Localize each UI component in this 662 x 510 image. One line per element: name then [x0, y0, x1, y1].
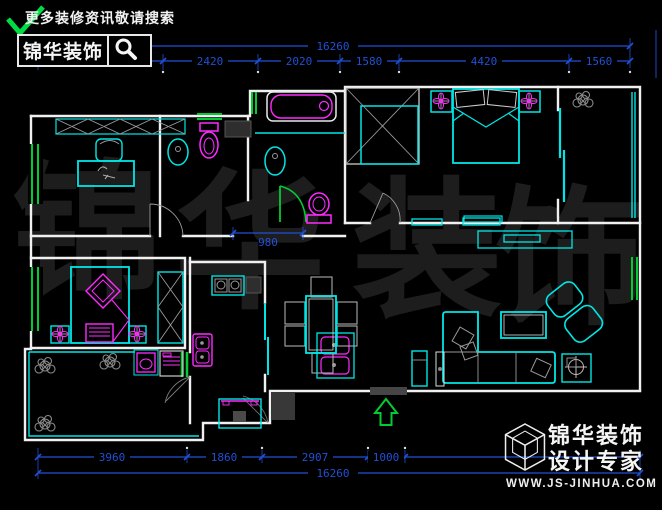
dim-top-seg-2: 2020 — [286, 55, 313, 68]
chair — [312, 353, 333, 373]
tv — [464, 216, 502, 222]
double-bed — [453, 89, 519, 163]
plant — [35, 358, 55, 374]
armchair — [543, 279, 606, 346]
balcony-window — [632, 92, 635, 218]
pillow — [487, 90, 516, 108]
dim-top-total: 16260 — [316, 40, 349, 53]
chair — [311, 277, 332, 297]
chair — [285, 302, 305, 324]
chair — [96, 139, 122, 161]
toilet-bowl — [309, 193, 329, 215]
coffee-table — [501, 312, 546, 338]
living-room-furniture — [412, 279, 606, 386]
footer-url: WWW.JS-JINHUA.COM — [506, 478, 657, 490]
master-bedroom-furniture — [346, 88, 635, 222]
cushion — [460, 342, 478, 360]
plant — [100, 354, 120, 370]
dim-bottom-total: 16260 — [316, 467, 349, 480]
pillow — [455, 90, 484, 108]
sliding-door — [560, 108, 564, 202]
dining-set — [285, 277, 357, 373]
blanket — [86, 324, 113, 342]
footer-logo: 锦华装饰 设计专家 WWW.JS-JINHUA.COM — [488, 404, 662, 508]
entry-arrow-icon — [375, 399, 397, 425]
telephone-icon — [98, 167, 115, 179]
dim-top-seg-5: 1560 — [586, 55, 613, 68]
floor-plan-canvas: 锦 华 装 饰 — [0, 0, 662, 510]
dim-bottom-seg-2: 2907 — [302, 451, 329, 464]
cushion — [531, 358, 551, 377]
walls — [25, 87, 640, 440]
kitchen-door — [265, 303, 268, 375]
logo-brand-text: 锦华装饰 — [19, 37, 103, 64]
plant — [573, 92, 593, 108]
washbasin — [265, 147, 285, 175]
toilet-tank — [200, 123, 218, 131]
dim-bottom-seg-1: 1860 — [211, 451, 238, 464]
dim-interior-980: 980 — [258, 236, 278, 249]
search-icon — [109, 35, 142, 66]
dim-bottom-seg-0: 3960 — [99, 451, 126, 464]
footer-tagline: 设计专家 — [548, 444, 644, 476]
dim-bottom-seg-3: 1000 — [373, 451, 400, 464]
door-swings — [150, 193, 400, 423]
second-bedroom-furniture — [51, 267, 183, 343]
cabinet — [412, 351, 427, 386]
plant — [35, 416, 55, 432]
wall-fills — [225, 121, 407, 420]
logo-tagline: 更多装修资讯敬请搜索 — [25, 8, 175, 28]
cube-logo-icon — [502, 422, 548, 472]
desk — [78, 161, 134, 186]
bathroom-fixtures — [255, 92, 345, 223]
dim-top-seg-3: 1580 — [356, 55, 383, 68]
dim-top-seg-1: 2420 — [197, 55, 224, 68]
logo-search-box: 锦华装饰 — [17, 34, 152, 67]
toilet-tank — [307, 215, 331, 223]
chair — [337, 302, 357, 324]
dim-top-seg-4: 4420 — [471, 55, 498, 68]
wardrobe — [158, 272, 183, 343]
study-furniture — [56, 119, 185, 186]
chair — [285, 326, 305, 346]
